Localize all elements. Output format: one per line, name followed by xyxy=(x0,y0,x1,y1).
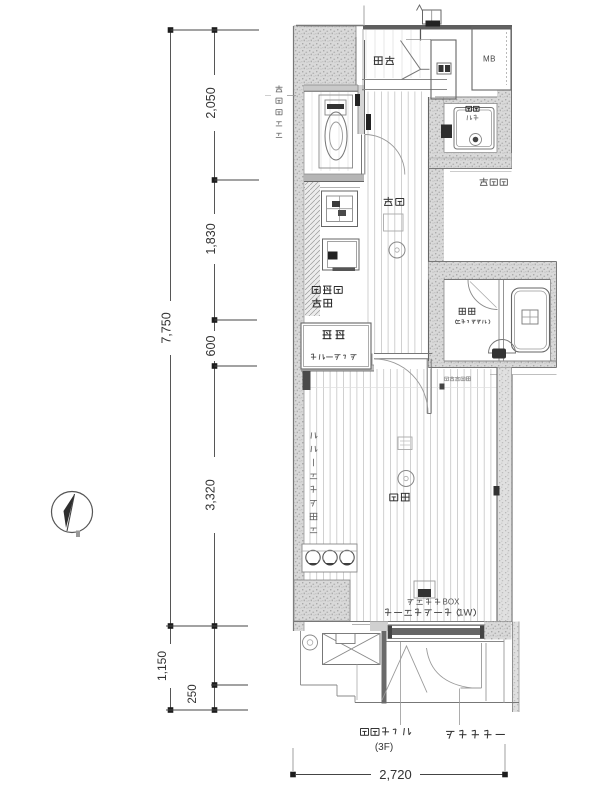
svg-text:3,320: 3,320 xyxy=(204,479,218,510)
svg-text:250: 250 xyxy=(187,684,199,703)
svg-text:MB: MB xyxy=(483,55,496,64)
svg-text:2,720: 2,720 xyxy=(379,767,412,782)
svg-text:2,050: 2,050 xyxy=(204,87,218,118)
svg-text:BOX: BOX xyxy=(443,598,461,607)
svg-text:1,830: 1,830 xyxy=(204,223,218,254)
svg-text:(3F): (3F) xyxy=(375,742,393,753)
svg-text:1W: 1W xyxy=(458,608,472,619)
svg-text:1,150: 1,150 xyxy=(155,651,169,681)
svg-text:7,750: 7,750 xyxy=(160,312,174,343)
svg-text:600: 600 xyxy=(204,336,218,357)
